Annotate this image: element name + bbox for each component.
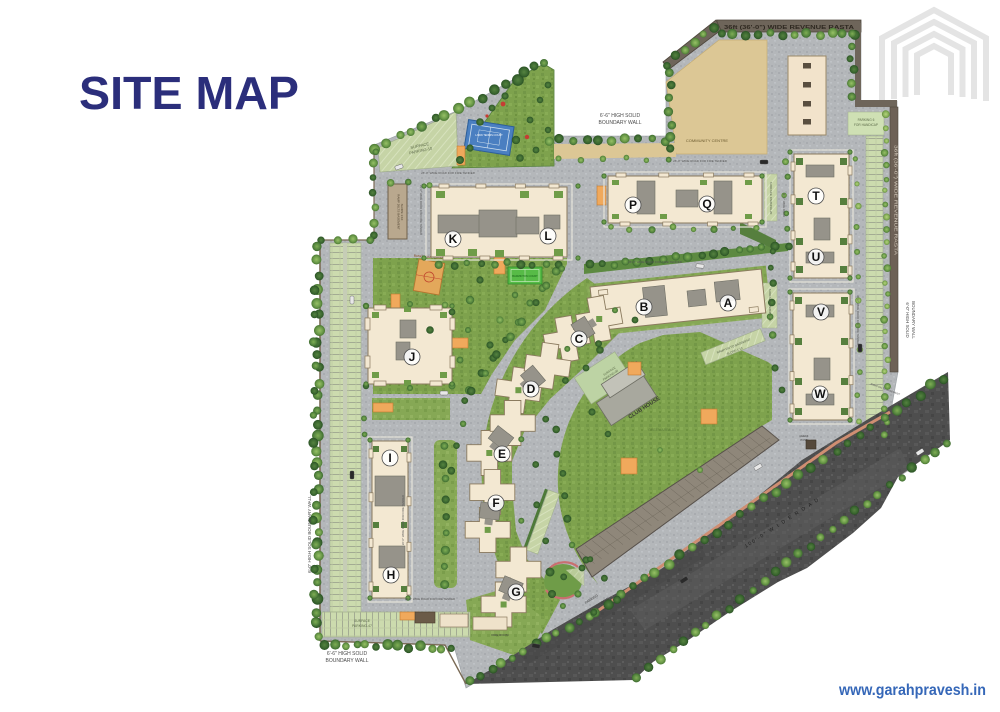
svg-text:P: P [629, 198, 637, 212]
svg-text:L: L [544, 229, 551, 243]
svg-text:FOR HANDICAP: FOR HANDICAP [854, 123, 878, 127]
svg-text:COMMUNITY CENTRE: COMMUNITY CENTRE [686, 138, 728, 143]
svg-text:SURFACE PARKING-20: SURFACE PARKING-20 [769, 182, 773, 215]
svg-text:K: K [449, 232, 458, 246]
svg-text:F: F [492, 496, 499, 510]
svg-text:Q: Q [702, 197, 711, 211]
svg-text:6'-0" HIGH SOLID: 6'-0" HIGH SOLID [905, 302, 910, 337]
svg-text:B: B [640, 300, 649, 314]
svg-text:6'-0" HIGH SOLID BOUNDARY WALL: 6'-0" HIGH SOLID BOUNDARY WALL [307, 495, 312, 573]
svg-text:BOUNDARY WALL: BOUNDARY WALL [599, 120, 642, 126]
svg-text:PARKING 6: PARKING 6 [858, 118, 875, 122]
svg-text:J: J [409, 350, 416, 364]
svg-text:G: G [511, 585, 520, 599]
svg-text:PARKING-47: PARKING-47 [352, 624, 372, 628]
svg-text:SLOPE 1:10: SLOPE 1:10 [400, 204, 404, 221]
svg-text:FIRE ROOM: FIRE ROOM [492, 633, 510, 637]
svg-text:D: D [527, 382, 536, 396]
svg-text:26'-0" WIDE ROAD FOR FIRE TEND: 26'-0" WIDE ROAD FOR FIRE TENDER [419, 185, 423, 235]
svg-text:BADMINTON COURT: BADMINTON COURT [512, 274, 538, 278]
svg-text:CHECK: CHECK [799, 434, 808, 438]
svg-text:C: C [575, 332, 584, 346]
svg-text:SITE MAP: SITE MAP [79, 67, 299, 119]
svg-text:26'-0" WIDE ROAD FOR FIRE TEND: 26'-0" WIDE ROAD FOR FIRE TENDER [628, 260, 683, 264]
svg-text:E: E [498, 447, 506, 461]
svg-text:I: I [388, 451, 391, 465]
svg-text:SURFACE: SURFACE [354, 619, 371, 623]
svg-text:26'-0" WIDE ROAD FOR FIRE TEND: 26'-0" WIDE ROAD FOR FIRE TENDER [421, 171, 476, 175]
svg-text:V: V [817, 305, 825, 319]
svg-text:T: T [812, 189, 820, 203]
svg-text:6'-6" HIGH SOLID: 6'-6" HIGH SOLID [327, 651, 368, 657]
svg-text:BOUNDARY WALL: BOUNDARY WALL [911, 301, 916, 339]
svg-text:LAWN TENNIS COURT: LAWN TENNIS COURT [475, 133, 503, 137]
svg-text:U: U [812, 250, 821, 264]
svg-text:A: A [724, 296, 733, 310]
svg-text:W: W [814, 387, 826, 401]
svg-text:RAMP 26LTS BASEMENT: RAMP 26LTS BASEMENT [397, 194, 401, 230]
svg-text:26'-0" WIDE ROAD FOR FIRE TEND: 26'-0" WIDE ROAD FOR FIRE TENDER [405, 597, 455, 601]
svg-text:BOUNDARY WALL: BOUNDARY WALL [326, 658, 369, 664]
svg-text:GREEN AREA-01: GREEN AREA-01 [648, 428, 676, 432]
svg-text:26'-0" WIDE ROAD FOR FIRE TEND: 26'-0" WIDE ROAD FOR FIRE TENDER [401, 495, 405, 545]
svg-text:SURFACE PARKING-06: SURFACE PARKING-06 [768, 289, 772, 322]
svg-text:www.garahpravesh.in: www.garahpravesh.in [838, 682, 986, 699]
svg-text:30'-0" WIDE ROAD FOR FIRE TEND: 30'-0" WIDE ROAD FOR FIRE TENDER [856, 295, 860, 345]
svg-text:26'-0" WIDE ROAD FOR FIRE TEND: 26'-0" WIDE ROAD FOR FIRE TENDER [673, 159, 728, 163]
svg-text:36ft (36'-0") WIDE REVENUE RAS: 36ft (36'-0") WIDE REVENUE RASTA [894, 145, 899, 255]
svg-text:30'-0" WIDE ROAD: 30'-0" WIDE ROAD [782, 193, 786, 217]
svg-text:6'-6" HIGH SOLID: 6'-6" HIGH SOLID [600, 113, 641, 119]
svg-text:H: H [387, 568, 396, 582]
